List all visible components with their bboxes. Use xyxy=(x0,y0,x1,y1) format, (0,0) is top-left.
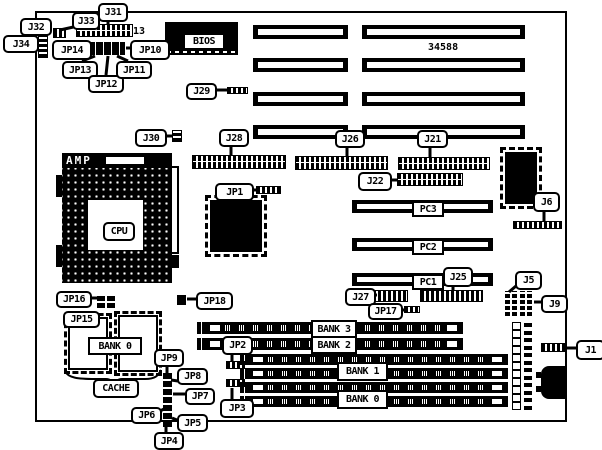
leader-jp13 xyxy=(82,56,95,61)
leader-jp5 xyxy=(172,418,177,420)
leader-jp11 xyxy=(117,56,128,61)
leader-lines xyxy=(0,0,602,450)
motherboard-diagram: AMP J31J33J32J34JP14JP10JP13JP12JP11J29J… xyxy=(0,0,602,450)
leader-j5 xyxy=(509,286,516,292)
leader-jp12 xyxy=(106,56,108,75)
leader-jp8 xyxy=(171,380,178,381)
leader-jp6 xyxy=(158,409,164,412)
leader-j33 xyxy=(60,26,78,30)
cache-brace xyxy=(65,370,161,385)
